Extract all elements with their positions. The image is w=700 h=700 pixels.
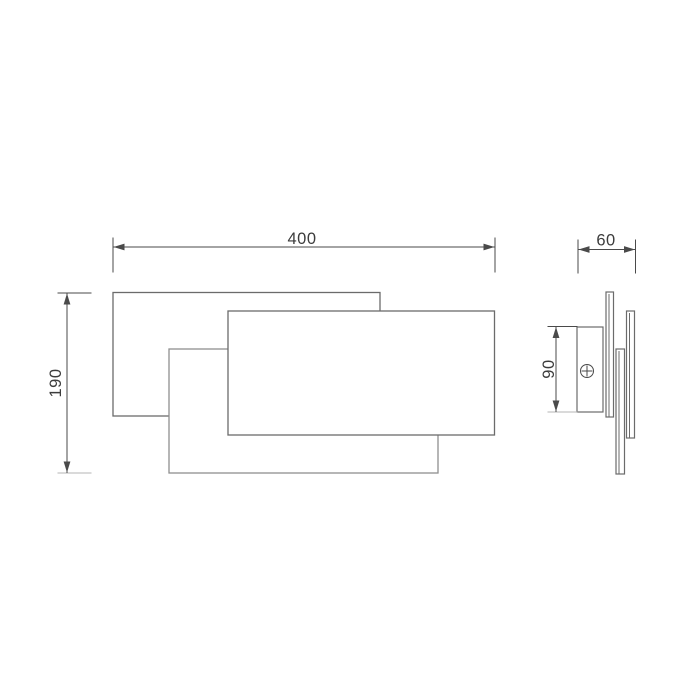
dim-depth-arrow-right — [624, 246, 635, 253]
dim-depth-label: 60 — [596, 232, 615, 250]
dim-plate-height-label: 90 — [540, 359, 558, 378]
screw-icon — [581, 365, 594, 378]
dim-plate-height-arrow-top — [553, 327, 560, 338]
dim-depth-arrow-left — [579, 246, 590, 253]
dim-height-arrow-bottom — [64, 462, 71, 473]
dim-plate-height-arrow-bottom — [553, 401, 560, 412]
dim-width-arrow-right — [484, 244, 495, 251]
dim-width-arrow-left — [114, 244, 125, 251]
dim-width-label: 400 — [287, 230, 316, 248]
side-back-panel — [606, 292, 614, 417]
wall-light-dimension-drawing: 400 190 60 90 — [0, 0, 700, 700]
front-panel — [228, 311, 495, 435]
side-front-panel — [627, 311, 635, 438]
side-view — [577, 292, 635, 474]
front-view — [113, 293, 495, 474]
side-middle-panel — [616, 349, 625, 474]
dim-height-label: 190 — [47, 368, 65, 397]
dim-height-arrow-top — [64, 294, 71, 305]
